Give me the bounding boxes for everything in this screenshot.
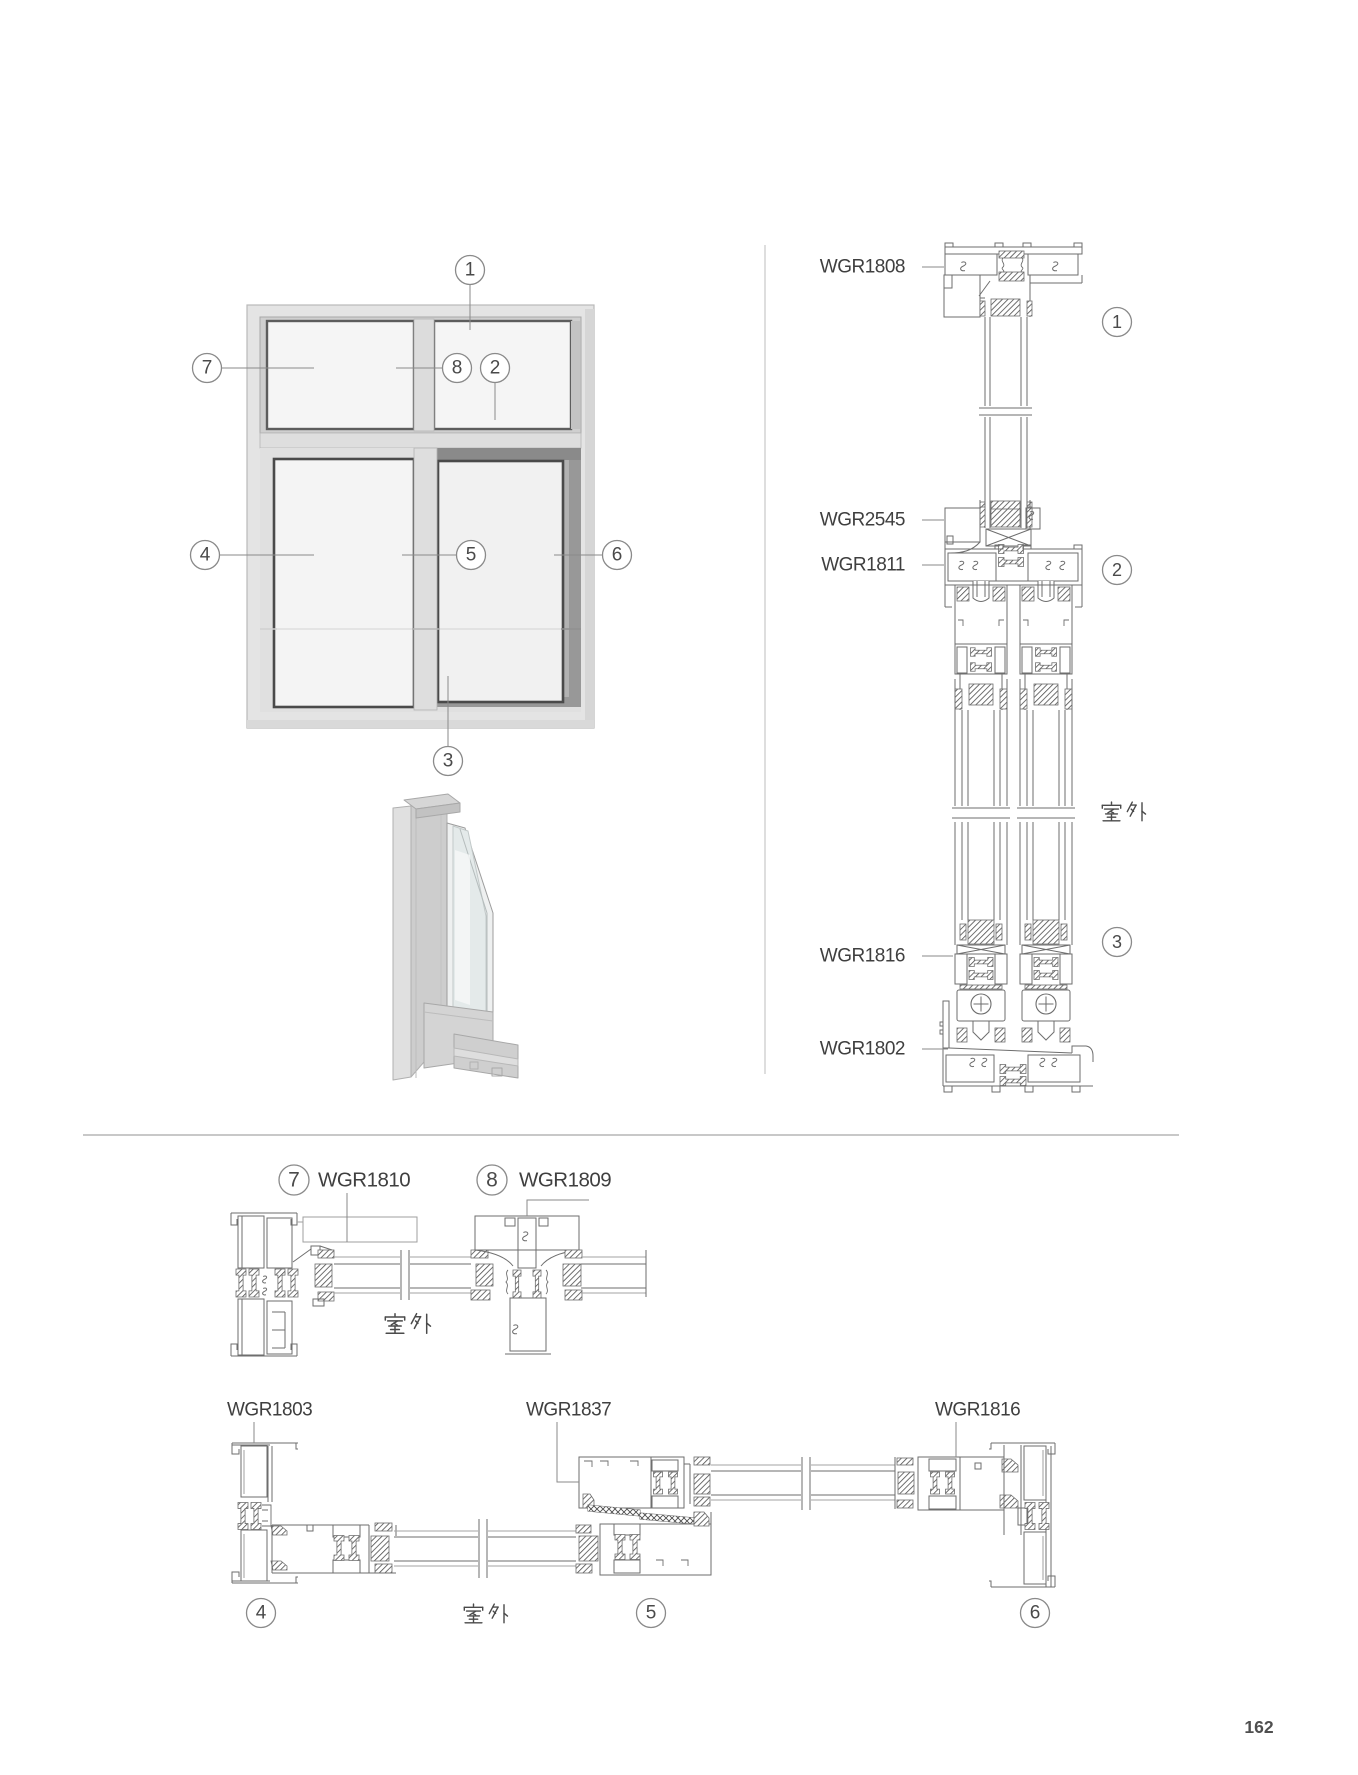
svg-text:6: 6 — [612, 545, 623, 566]
svg-text:WGR1803: WGR1803 — [227, 1400, 312, 1421]
svg-text:WGR2545: WGR2545 — [820, 510, 905, 531]
svg-text:8: 8 — [486, 1169, 498, 1192]
svg-text:5: 5 — [466, 545, 477, 566]
svg-text:3: 3 — [1112, 932, 1122, 952]
svg-text:7: 7 — [202, 358, 213, 379]
svg-text:5: 5 — [646, 1603, 657, 1624]
svg-text:1: 1 — [465, 260, 476, 281]
svg-text:WGR1802: WGR1802 — [820, 1039, 905, 1060]
svg-text:WGR1816: WGR1816 — [935, 1400, 1020, 1421]
svg-text:4: 4 — [200, 545, 211, 566]
svg-text:WGR1809: WGR1809 — [519, 1169, 611, 1192]
svg-text:7: 7 — [288, 1169, 300, 1192]
svg-text:8: 8 — [452, 358, 463, 379]
svg-text:WGR1811: WGR1811 — [821, 555, 905, 576]
svg-text:WGR1808: WGR1808 — [820, 257, 905, 278]
svg-text:4: 4 — [256, 1603, 267, 1624]
svg-text:2: 2 — [1112, 560, 1122, 580]
svg-text:162: 162 — [1244, 1717, 1273, 1737]
svg-text:6: 6 — [1030, 1603, 1041, 1624]
svg-text:WGR1810: WGR1810 — [318, 1169, 410, 1192]
svg-text:WGR1837: WGR1837 — [526, 1400, 611, 1421]
svg-text:2: 2 — [490, 358, 501, 379]
svg-text:WGR1816: WGR1816 — [820, 946, 905, 967]
svg-text:3: 3 — [443, 751, 454, 772]
svg-text:1: 1 — [1112, 312, 1122, 332]
